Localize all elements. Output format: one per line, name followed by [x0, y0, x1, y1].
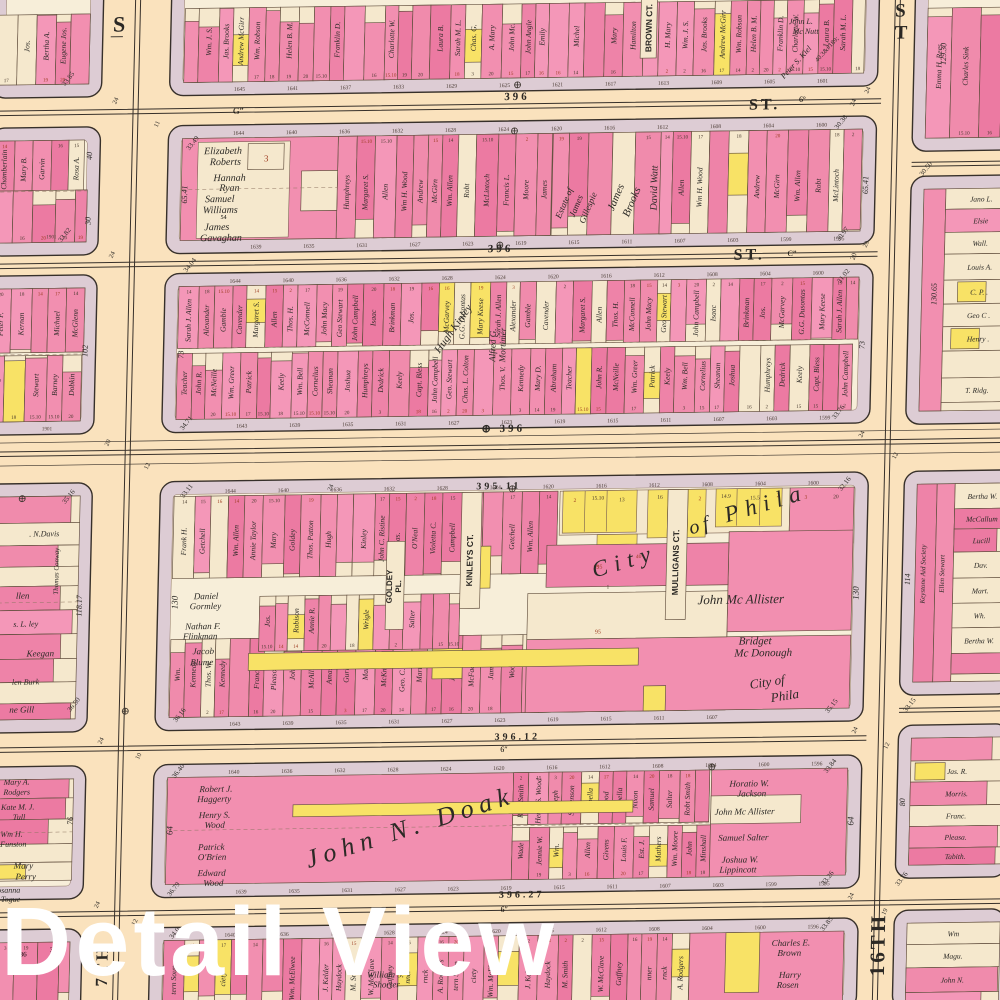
svg-text:Emily: Emily [537, 27, 546, 46]
svg-text:18: 18 [349, 644, 355, 649]
svg-text:15: 15 [308, 710, 314, 715]
svg-text:Mary: Mary [609, 27, 618, 45]
svg-text:14: 14 [278, 645, 284, 650]
svg-text:Allen: Allen [380, 184, 389, 201]
svg-text:Keely: Keely [795, 365, 804, 384]
svg-text:Geo Stewart: Geo Stewart [335, 299, 345, 338]
svg-text:BROWN CT.: BROWN CT. [643, 4, 654, 52]
svg-text:Robert J.: Robert J. [198, 784, 232, 794]
svg-text:1631: 1631 [395, 421, 407, 427]
svg-text:18: 18 [700, 871, 706, 876]
svg-text:Keely: Keely [276, 372, 285, 391]
svg-text:Wood: Wood [205, 820, 226, 830]
svg-text:John Macy: John Macy [319, 301, 329, 335]
svg-text:1633: 1633 [393, 84, 405, 90]
svg-text:Patrick: Patrick [197, 842, 226, 852]
svg-text:1615: 1615 [568, 240, 580, 246]
svg-text:PL.: PL. [394, 580, 403, 593]
svg-text:Chamberlain: Chamberlain [0, 149, 9, 189]
svg-text:1612: 1612 [595, 927, 607, 933]
svg-text:15.10: 15.10 [958, 132, 970, 137]
svg-text:1620: 1620 [547, 274, 559, 280]
svg-text:18: 18 [855, 67, 861, 72]
svg-text:1631: 1631 [388, 719, 400, 725]
svg-text:17: 17 [525, 72, 531, 77]
svg-text:20: 20 [68, 415, 74, 420]
svg-text:GOLDEY: GOLDEY [385, 569, 395, 604]
svg-text:20: 20 [462, 409, 468, 414]
svg-text:18: 18 [390, 288, 396, 293]
svg-text:19: 19 [550, 408, 556, 413]
svg-text:Rosen: Rosen [776, 980, 800, 990]
svg-text:Wm H. Wood: Wm H. Wood [695, 167, 705, 207]
svg-text:1621: 1621 [552, 82, 564, 88]
svg-text:16: 16 [611, 71, 617, 76]
svg-text:Mary A.: Mary A. [3, 777, 30, 786]
svg-text:Dedrick: Dedrick [376, 367, 386, 393]
svg-text:15.10: 15.10 [269, 499, 281, 504]
svg-text:Sarah M. L.: Sarah M. L. [453, 20, 463, 57]
svg-text:20: 20 [251, 499, 257, 504]
svg-text:20: 20 [322, 644, 328, 649]
svg-text:1619: 1619 [554, 419, 566, 425]
svg-text:Perry: Perry [14, 871, 36, 881]
svg-text:Salter: Salter [665, 790, 674, 808]
svg-text:Brinkman: Brinkman [387, 302, 397, 332]
svg-text:Bridget: Bridget [739, 635, 773, 647]
svg-text:1612: 1612 [649, 483, 661, 489]
svg-text:Brown: Brown [777, 948, 801, 958]
svg-text:A. Mary: A. Mary [487, 24, 497, 51]
svg-text:15: 15 [272, 289, 278, 294]
svg-text:John Angle: John Angle [524, 19, 534, 54]
svg-text:1644: 1644 [233, 131, 245, 137]
svg-text:20: 20 [764, 68, 770, 73]
svg-text:73: 73 [176, 350, 185, 358]
svg-text:15: 15 [813, 405, 819, 410]
svg-text:Wm.: Wm. [551, 843, 560, 857]
svg-text:17: 17 [245, 413, 251, 418]
svg-text:15: 15 [508, 72, 514, 77]
svg-text:1640: 1640 [286, 130, 298, 136]
svg-text:1624: 1624 [440, 767, 452, 773]
svg-text:Est. J.: Est. J. [637, 840, 646, 860]
svg-text:Michael: Michael [52, 311, 62, 337]
svg-text:McGarvey: McGarvey [777, 296, 787, 330]
svg-text:80: 80 [898, 798, 907, 806]
svg-text:Gormley: Gormley [190, 601, 222, 611]
svg-text:Wm. Robson: Wm. Robson [252, 21, 262, 60]
svg-text:1604: 1604 [763, 123, 775, 129]
svg-text:20: 20 [833, 494, 839, 500]
svg-text:Wm.: Wm. [173, 668, 182, 682]
svg-text:1635: 1635 [335, 720, 347, 726]
svg-text:1631: 1631 [356, 243, 368, 249]
svg-text:15: 15 [201, 500, 207, 505]
svg-text:Cavender: Cavender [235, 305, 245, 335]
svg-text:18: 18 [487, 707, 493, 712]
svg-text:McNeille: McNeille [611, 363, 621, 393]
svg-text:Charles E.: Charles E. [772, 938, 811, 949]
svg-text:Ellen Stewart: Ellen Stewart [938, 554, 947, 594]
svg-text:20: 20 [303, 75, 309, 80]
svg-text:Getchell: Getchell [507, 524, 517, 550]
svg-text:17: 17 [431, 708, 437, 713]
svg-text:13: 13 [619, 497, 625, 503]
svg-text:McGlenn: McGlenn [70, 309, 80, 339]
svg-text:1632: 1632 [388, 276, 400, 282]
svg-text:O'Neal: O'Neal [410, 527, 419, 549]
svg-text:Robt: Robt [814, 178, 823, 194]
svg-text:6º: 6º [799, 95, 806, 104]
svg-text:15.10: 15.10 [381, 140, 393, 145]
svg-text:C”: C” [787, 249, 797, 258]
svg-text:Thos. V.: Thos. V. [498, 366, 508, 391]
svg-text:Wm H. Wood: Wm H. Wood [399, 171, 409, 211]
svg-text:15.10: 15.10 [448, 643, 460, 648]
svg-text:130.65: 130.65 [929, 283, 939, 305]
svg-text:15.10: 15.10 [482, 138, 494, 143]
svg-text:15.10: 15.10 [218, 290, 230, 295]
svg-text:Rosa A.: Rosa A. [71, 157, 81, 182]
svg-text:18: 18 [630, 284, 636, 289]
svg-text:Harry: Harry [778, 970, 801, 980]
svg-text:Geo C .: Geo C . [967, 311, 990, 320]
svg-text:130: 130 [170, 595, 180, 609]
svg-text:17: 17 [604, 775, 610, 780]
svg-text:1615: 1615 [600, 716, 612, 722]
svg-text:Alexander: Alexander [508, 300, 518, 332]
svg-text:17: 17 [698, 135, 704, 140]
svg-text:1603: 1603 [712, 883, 724, 889]
svg-text:Jennie W.: Jennie W. [534, 836, 544, 865]
svg-text:1639: 1639 [250, 244, 262, 250]
svg-text:15: 15 [433, 139, 439, 144]
svg-text:1: 1 [607, 584, 610, 590]
svg-text:. N.Davis: . N.Davis [29, 529, 59, 538]
svg-text:1639: 1639 [289, 423, 301, 429]
svg-text:1641: 1641 [287, 86, 299, 92]
svg-text:18: 18 [269, 75, 275, 80]
svg-text:15: 15 [596, 408, 602, 413]
svg-text:14: 14 [254, 289, 260, 294]
svg-text:18: 18 [686, 871, 692, 876]
svg-text:14: 14 [573, 71, 579, 76]
svg-text:1627: 1627 [448, 421, 460, 427]
svg-text:15: 15 [646, 136, 652, 141]
svg-text:17: 17 [4, 79, 10, 84]
svg-text:14: 14 [633, 775, 639, 780]
svg-text:Francis L.: Francis L. [501, 174, 511, 207]
svg-text:396: 396 [504, 91, 530, 103]
svg-text:20: 20 [621, 872, 627, 877]
svg-text:18: 18 [204, 290, 210, 295]
svg-text:Kennedy: Kennedy [217, 660, 227, 688]
svg-text:15: 15 [536, 776, 542, 781]
svg-text:McNeille: McNeille [209, 368, 219, 398]
svg-text:Robt: Robt [462, 183, 471, 199]
svg-text:Charlotte W.: Charlotte W. [387, 20, 397, 59]
svg-text:Salter: Salter [407, 610, 416, 628]
svg-text:T. Ridg.: T. Ridg. [965, 386, 989, 395]
svg-text:14: 14 [38, 292, 44, 297]
svg-text:16: 16 [20, 237, 26, 242]
svg-text:Annie R.: Annie R. [307, 607, 317, 634]
svg-text:Jos.: Jos. [22, 40, 31, 52]
svg-text:Keely: Keely [395, 371, 404, 390]
svg-text:Dav.: Dav. [973, 561, 988, 570]
svg-text:1644: 1644 [229, 279, 241, 285]
svg-text:Frank H.: Frank H. [179, 527, 189, 556]
svg-text:John Macy: John Macy [644, 297, 654, 331]
svg-text:John Campbell: John Campbell [691, 290, 701, 336]
svg-text:1628: 1628 [387, 767, 399, 773]
svg-text:Wm. Greer: Wm. Greer [630, 360, 640, 394]
svg-text:Wm. Robson: Wm. Robson [734, 15, 744, 54]
svg-text:17: 17 [510, 496, 516, 501]
svg-text:1636: 1636 [281, 769, 293, 775]
svg-text:15.10: 15.10 [677, 135, 689, 140]
svg-text:16: 16 [217, 500, 223, 505]
svg-text:Getchell: Getchell [197, 528, 207, 554]
svg-text:1611: 1611 [660, 418, 671, 424]
svg-text:2: 2 [574, 498, 577, 504]
svg-text:Dedrick: Dedrick [777, 362, 787, 388]
svg-text:Gavaghan: Gavaghan [200, 233, 242, 245]
svg-text:20: 20 [649, 775, 655, 780]
svg-text:Margaret S.: Margaret S. [360, 174, 370, 211]
svg-text:Chas. G.: Chas. G. [469, 24, 479, 51]
svg-text:Patrick: Patrick [244, 370, 254, 394]
svg-text:15: 15 [395, 497, 401, 502]
svg-text:1624: 1624 [498, 127, 510, 133]
svg-text:20: 20 [371, 288, 377, 293]
svg-text:1605: 1605 [764, 79, 776, 85]
svg-text:16: 16 [428, 287, 434, 292]
svg-text:John Mc.: John Mc. [507, 23, 517, 51]
svg-text:Annie Taylor: Annie Taylor [248, 521, 258, 561]
svg-text:Humphreys: Humphreys [763, 358, 773, 394]
svg-text:16: 16 [555, 71, 561, 76]
svg-text:Allen: Allen [583, 842, 592, 859]
svg-text:Wade: Wade [516, 842, 525, 859]
svg-text:Jas. Brooks: Jas. Brooks [699, 17, 709, 52]
svg-text:John C. Ristine: John C. Ristine [377, 515, 387, 562]
svg-text:Jas. R.: Jas. R. [947, 767, 968, 776]
svg-text:Mart.: Mart. [971, 586, 989, 595]
svg-text:Wm. Greer: Wm. Greer [226, 366, 236, 400]
svg-text:Alexander: Alexander [201, 305, 211, 337]
svg-text:1643: 1643 [236, 424, 248, 430]
svg-text:16: 16 [657, 495, 663, 501]
svg-text:15.10: 15.10 [592, 496, 605, 502]
svg-text:16: 16 [445, 287, 451, 292]
svg-text:16: 16 [539, 72, 545, 77]
svg-text:Andrew: Andrew [752, 174, 762, 199]
svg-text:14: 14 [2, 145, 8, 150]
svg-text:Wm. Allen: Wm. Allen [231, 525, 241, 557]
svg-text:14: 14 [728, 283, 734, 288]
svg-text:17: 17 [638, 872, 644, 877]
svg-text:John R.: John R. [594, 366, 604, 389]
svg-text:1612: 1612 [599, 764, 611, 770]
svg-text:16: 16 [432, 410, 438, 415]
svg-text:Bertha W.: Bertha W. [967, 492, 997, 501]
svg-text:1608: 1608 [648, 927, 660, 933]
svg-text:Andrew McGirr: Andrew McGirr [236, 17, 246, 67]
svg-text:1901: 1901 [42, 426, 53, 432]
svg-text:Mary: Mary [13, 860, 34, 870]
svg-text:Sarah J. Allen: Sarah J. Allen [183, 299, 193, 342]
svg-text:len Burk: len Burk [12, 677, 40, 686]
svg-text:Mathers: Mathers [654, 836, 664, 862]
svg-text:Goldey: Goldey [287, 528, 297, 551]
svg-text:Gamble: Gamble [218, 307, 228, 332]
svg-text:David Watt: David Watt [649, 165, 661, 211]
svg-text:18: 18 [736, 135, 742, 140]
svg-text:T: T [894, 22, 910, 43]
svg-text:Thos. H.: Thos. H. [285, 306, 295, 332]
svg-text:18: 18 [685, 774, 691, 779]
svg-text:Gaffney: Gaffney [614, 961, 624, 986]
svg-text:20: 20 [468, 707, 474, 712]
svg-text:Joshua W.: Joshua W. [722, 854, 759, 865]
svg-text:19: 19 [309, 499, 315, 504]
svg-text:G”: G” [233, 106, 244, 116]
svg-text:18: 18 [19, 293, 25, 298]
svg-text:Lucill: Lucill [972, 536, 991, 545]
svg-text:Wm. Bell: Wm. Bell [295, 368, 305, 396]
svg-text:Robison: Robison [291, 608, 301, 634]
svg-text:1600: 1600 [758, 762, 770, 768]
svg-text:James: James [204, 222, 229, 233]
svg-text:Wm. Bell: Wm. Bell [680, 362, 690, 390]
svg-text:20: 20 [0, 293, 4, 298]
svg-text:Jano L.: Jano L. [970, 194, 993, 203]
svg-text:16: 16 [449, 708, 455, 713]
svg-text:Funston: Funston [0, 840, 27, 849]
svg-text:1627: 1627 [409, 242, 421, 248]
svg-text:Daniel: Daniel [193, 591, 219, 601]
svg-text:95: 95 [595, 630, 601, 636]
svg-text:395.11: 395.11 [476, 481, 521, 493]
svg-text:Samuel: Samuel [647, 788, 657, 810]
svg-text:Sarah M. L.: Sarah M. L. [838, 14, 848, 51]
svg-text:Thos. H.: Thos. H. [610, 301, 620, 327]
svg-text:1627: 1627 [441, 719, 453, 725]
svg-text:John Mc Allister: John Mc Allister [715, 806, 776, 817]
svg-text:Magu.: Magu. [942, 951, 963, 960]
svg-text:396: 396 [488, 243, 514, 255]
svg-text:18: 18 [278, 412, 284, 417]
svg-text:James: James [539, 180, 548, 199]
svg-text:95: 95 [596, 565, 602, 571]
svg-text:54: 54 [221, 215, 227, 221]
svg-text:20: 20 [270, 710, 276, 715]
svg-text:Givens: Givens [601, 839, 610, 860]
svg-text:ST.: ST. [733, 246, 765, 263]
svg-text:130: 130 [851, 586, 861, 600]
svg-text:14: 14 [448, 139, 454, 144]
svg-text:1612: 1612 [653, 273, 665, 279]
svg-text:Franklin D.: Franklin D. [775, 15, 785, 52]
svg-text:McGirn: McGirn [772, 174, 782, 199]
svg-text:15: 15 [808, 68, 814, 73]
svg-text:1620: 1620 [493, 766, 505, 772]
svg-text:Geo Stewart: Geo Stewart [659, 294, 669, 333]
svg-text:1644: 1644 [225, 489, 237, 495]
svg-text:Edward: Edward [196, 868, 226, 878]
svg-text:1636: 1636 [339, 129, 351, 135]
svg-text:1616: 1616 [600, 274, 612, 280]
svg-text:15: 15 [699, 406, 705, 411]
svg-text:Abraham: Abraham [549, 363, 559, 393]
svg-text:17: 17 [761, 282, 767, 287]
svg-text:16: 16 [584, 873, 590, 878]
svg-text:Teacher: Teacher [180, 371, 190, 395]
svg-text:1607: 1607 [674, 238, 686, 244]
svg-text:17: 17 [55, 292, 61, 297]
svg-text:W. McClave: W. McClave [596, 955, 606, 993]
svg-text:Jacob: Jacob [193, 646, 215, 656]
svg-text:1637: 1637 [340, 85, 352, 91]
svg-text:Allen: Allen [594, 306, 603, 323]
svg-text:Minshall: Minshall [698, 835, 708, 863]
svg-text:1619: 1619 [515, 241, 527, 247]
svg-text:Keystone Aid Society: Keystone Aid Society [918, 544, 927, 605]
svg-text:6″: 6″ [500, 745, 508, 754]
svg-text:Thomas Conway: Thomas Conway [52, 547, 61, 595]
svg-text:1643: 1643 [229, 722, 241, 728]
svg-text:G.G. Dusontas: G.G. Dusontas [797, 289, 807, 335]
svg-text:Eugene Jos.: Eugene Jos. [58, 27, 68, 65]
svg-text:1613: 1613 [658, 81, 670, 87]
svg-text:Chas. L. Colton: Chas. L. Colton [460, 355, 470, 403]
svg-text:Horatio W.: Horatio W. [728, 778, 769, 789]
svg-text:Haggerty: Haggerty [196, 794, 231, 804]
svg-text:1611: 1611 [621, 239, 632, 245]
svg-text:Lippincott: Lippincott [718, 864, 757, 875]
svg-text:1612: 1612 [657, 125, 669, 131]
svg-text:Mc Nutt: Mc Nutt [792, 27, 820, 36]
svg-text:17: 17 [362, 709, 368, 714]
svg-text:Capt. Bless: Capt. Bless [811, 357, 821, 392]
svg-text:John N.: John N. [941, 975, 965, 984]
svg-text:20: 20 [210, 413, 216, 418]
svg-text:15: 15 [599, 938, 605, 943]
svg-text:Wm. Allen: Wm. Allen [445, 175, 455, 207]
svg-text:16: 16 [701, 69, 707, 74]
svg-text:Bertha W.: Bertha W. [964, 636, 994, 645]
svg-text:102: 102 [80, 345, 89, 357]
svg-text:15.10: 15.10 [324, 411, 336, 416]
svg-text:1625: 1625 [499, 83, 511, 89]
svg-text:1604: 1604 [755, 481, 767, 487]
svg-text:1596: 1596 [811, 761, 823, 767]
svg-text:John Campbell: John Campbell [350, 295, 360, 341]
svg-text:Jos.: Jos. [758, 306, 767, 318]
svg-text:14: 14 [735, 69, 741, 74]
svg-text:Allen: Allen [677, 179, 686, 196]
svg-text:Detail View: Detail View [1, 887, 555, 996]
svg-text:19: 19 [402, 73, 408, 78]
svg-text:John Campbell: John Campbell [430, 356, 440, 402]
svg-text:1596: 1596 [807, 924, 819, 930]
svg-text:Henry S.: Henry S. [198, 810, 231, 820]
svg-text:Peter F.: Peter F. [0, 312, 5, 337]
svg-text:14: 14 [399, 708, 405, 713]
svg-text:1599: 1599 [819, 415, 831, 421]
